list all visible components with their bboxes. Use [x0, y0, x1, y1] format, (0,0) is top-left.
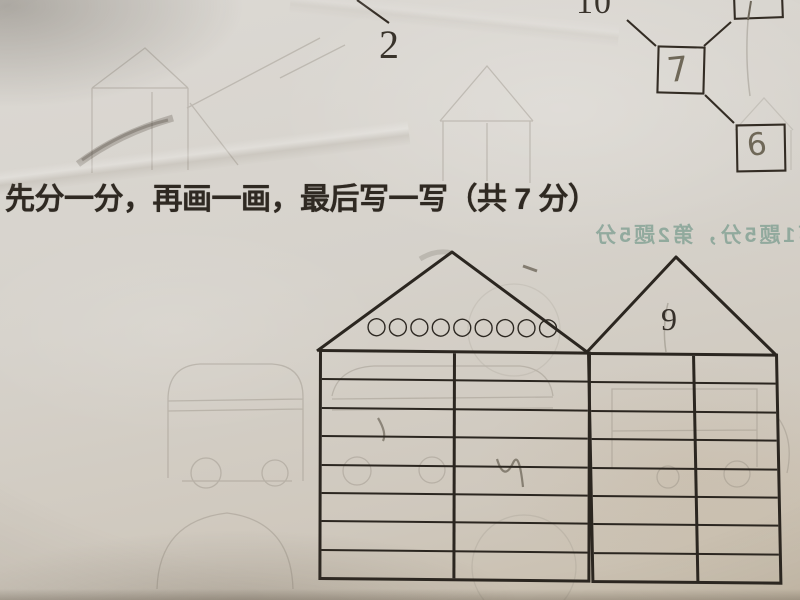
table-row	[591, 412, 777, 442]
showthrough-dome-icon	[157, 513, 293, 589]
table-row	[593, 525, 779, 555]
exercise-heading: 先分一分，再画一画，最后写一写（共 7 分）	[5, 174, 597, 218]
printed-number-10: 10	[576, 0, 612, 22]
table-row	[592, 440, 778, 470]
showthrough-house-top-center-icon	[440, 66, 533, 183]
right-house-table	[587, 352, 782, 585]
showthrough-house-top-left-icon	[92, 48, 188, 173]
worksheet-photo: 2 10 7 6 先分一分，再画一画，最后写一写（共 7 分） 第1题5分，第2…	[0, 0, 800, 600]
drawn-circles-row: ○○○○○○○○○	[366, 311, 559, 340]
pencil-stroke-top-box	[748, 1, 751, 20]
line-10-to-box	[627, 20, 656, 46]
table-row	[592, 469, 778, 499]
table-row	[594, 554, 779, 582]
table-row	[590, 355, 776, 385]
printed-number-2: 2	[379, 21, 399, 68]
table-row	[591, 383, 777, 413]
answer-box-top	[733, 0, 783, 19]
mirrored-showthrough-note: 第1题5分，第2题5分	[592, 219, 800, 249]
handwritten-answer-6: 6	[745, 126, 769, 164]
pencil-dash-roof	[523, 266, 537, 271]
right-house-roof-icon	[587, 257, 776, 355]
right-house-rows	[590, 355, 779, 582]
number-chain-lines	[357, 0, 785, 171]
line-to-2	[357, 0, 389, 23]
left-house-table	[318, 349, 591, 583]
line-box-to-bottom-box	[705, 95, 734, 123]
showthrough-roofline-icon	[187, 38, 345, 165]
handwritten-answer-7: 7	[665, 49, 691, 91]
line-box-to-top-box	[704, 22, 731, 46]
table-row	[593, 497, 779, 527]
roof-number-9: 9	[661, 301, 677, 338]
showthrough-bus-left-icon	[168, 364, 303, 488]
pencil-streak	[747, 20, 750, 96]
